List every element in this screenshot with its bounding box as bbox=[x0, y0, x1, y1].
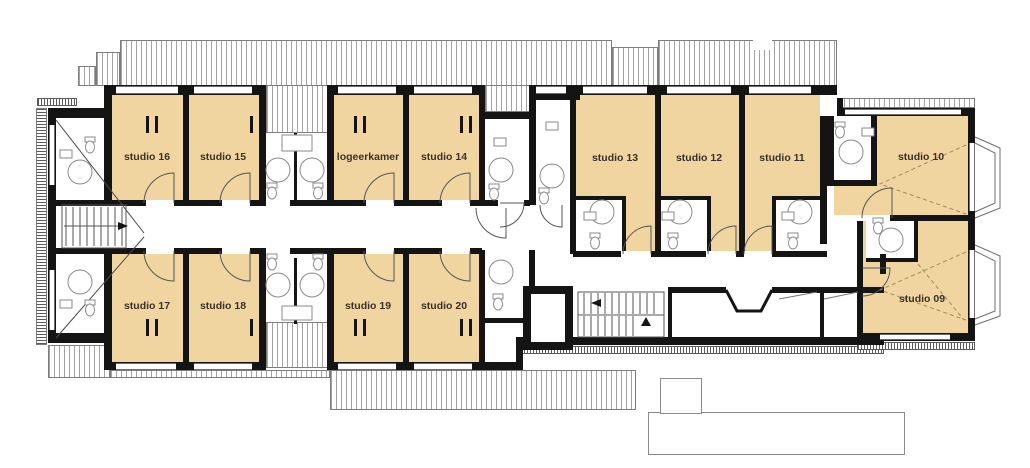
wall-segment bbox=[327, 254, 334, 370]
toilet-icon bbox=[85, 300, 95, 305]
room-label: studio 15 bbox=[200, 151, 246, 163]
bay-window bbox=[975, 251, 995, 319]
vent-icon bbox=[460, 116, 472, 133]
vent-icon bbox=[460, 319, 472, 336]
shower-icon bbox=[266, 158, 290, 182]
window bbox=[880, 334, 950, 340]
wall-segment bbox=[655, 93, 661, 254]
shower-icon bbox=[489, 260, 513, 284]
door-opening bbox=[726, 287, 772, 293]
roof-hatch-bottom bbox=[48, 345, 110, 378]
deck-tick-strip bbox=[520, 346, 884, 354]
sink-icon bbox=[282, 135, 312, 151]
lower-roof-outline bbox=[648, 412, 905, 455]
window bbox=[338, 86, 396, 94]
shower-icon bbox=[489, 158, 513, 182]
roof-hatch-step bbox=[96, 52, 120, 86]
toilet-icon bbox=[267, 254, 277, 259]
toilet-icon bbox=[268, 187, 277, 199]
room-studio-15 bbox=[189, 93, 259, 203]
wall-segment bbox=[772, 196, 820, 200]
deck-tick-strip-left bbox=[36, 108, 47, 345]
room-studio-16 bbox=[110, 93, 183, 203]
door-opening bbox=[222, 248, 250, 254]
shower-icon bbox=[300, 273, 324, 297]
room-label: studio 11 bbox=[759, 152, 805, 164]
door-opening bbox=[498, 200, 524, 206]
wall-segment bbox=[880, 254, 886, 274]
window bbox=[749, 86, 811, 94]
bay-window bbox=[975, 143, 995, 212]
wall-segment bbox=[403, 93, 409, 203]
slant-window-mark bbox=[824, 292, 858, 299]
roof-hatch-dip bbox=[266, 85, 328, 133]
roof-hatch-right bbox=[838, 98, 975, 108]
wall-segment bbox=[294, 258, 297, 324]
wall-segment bbox=[573, 337, 884, 345]
wall-segment bbox=[104, 85, 112, 206]
door-opening bbox=[266, 200, 290, 206]
door-opening bbox=[366, 200, 394, 206]
stair-arrow-icon bbox=[591, 299, 601, 307]
wall-segment bbox=[661, 196, 711, 200]
toilet-icon bbox=[313, 183, 323, 188]
room-label: studio 13 bbox=[592, 152, 638, 164]
wall-segment bbox=[668, 287, 884, 293]
bay-window bbox=[975, 245, 1000, 325]
wall-segment bbox=[772, 196, 776, 254]
room-label: studio 10 bbox=[898, 151, 944, 163]
wall-segment bbox=[259, 254, 266, 370]
sink-icon bbox=[282, 306, 312, 320]
sink-icon bbox=[60, 300, 72, 308]
roof-hatch-dip bbox=[266, 322, 328, 368]
toilet-icon bbox=[86, 141, 95, 153]
shower-icon bbox=[300, 158, 324, 182]
toilet-icon bbox=[313, 254, 323, 259]
door-opening bbox=[531, 294, 565, 342]
bathroom-cell bbox=[866, 221, 914, 261]
roof-hatch-bottom bbox=[110, 370, 330, 378]
room-logeerkamer bbox=[333, 93, 403, 203]
bay-window bbox=[975, 137, 1000, 218]
door-opening bbox=[366, 248, 394, 254]
floor-plan: studio 16 studio 15 logeerkamer studio 1… bbox=[0, 0, 1030, 468]
window bbox=[116, 363, 176, 370]
wall-segment bbox=[183, 93, 189, 203]
vent-icon bbox=[250, 319, 262, 336]
wall-segment bbox=[48, 108, 106, 118]
toilet-icon bbox=[493, 294, 503, 299]
room-label: logeerkamer bbox=[337, 151, 399, 163]
wall-segment bbox=[739, 93, 745, 254]
wall-segment bbox=[482, 112, 533, 119]
roof-hatch-top bbox=[658, 40, 837, 86]
window bbox=[536, 86, 566, 94]
wall-segment bbox=[707, 196, 711, 254]
room-studio-14 bbox=[409, 93, 479, 203]
wall-segment bbox=[827, 116, 834, 180]
door-opening bbox=[146, 200, 174, 206]
toilet-icon bbox=[85, 137, 95, 142]
wall-segment bbox=[622, 196, 626, 254]
wall-segment bbox=[183, 254, 189, 362]
wall-segment bbox=[516, 337, 523, 370]
window bbox=[194, 363, 252, 370]
door-opening bbox=[862, 215, 890, 221]
vent-icon bbox=[146, 319, 158, 336]
shower-icon bbox=[266, 273, 290, 297]
wall-segment bbox=[820, 290, 824, 337]
wall-segment bbox=[529, 85, 536, 205]
door-opening bbox=[706, 251, 736, 257]
room-label: studio 19 bbox=[345, 300, 391, 312]
window bbox=[969, 250, 975, 318]
door-opening bbox=[442, 248, 470, 254]
window bbox=[49, 125, 55, 185]
vent-icon bbox=[354, 116, 366, 133]
door-swing-arc bbox=[476, 208, 506, 238]
door-opening bbox=[442, 200, 470, 206]
door-opening bbox=[146, 248, 174, 254]
window bbox=[49, 270, 55, 330]
deck-tick-strip bbox=[37, 98, 77, 106]
sink-icon bbox=[546, 122, 558, 130]
wall-segment bbox=[327, 85, 334, 206]
wall-segment bbox=[820, 116, 827, 244]
wall-segment bbox=[259, 85, 266, 206]
roof-step-notch bbox=[753, 40, 772, 50]
toilet-icon bbox=[494, 298, 503, 310]
stair-arrow-icon bbox=[641, 317, 651, 326]
wall-segment bbox=[866, 258, 918, 262]
staircase bbox=[62, 205, 126, 248]
wall-segment bbox=[827, 180, 877, 186]
lower-roof-outline bbox=[660, 378, 702, 414]
wall-segment bbox=[294, 133, 297, 203]
slant-window-mark bbox=[779, 292, 817, 299]
roof-hatch-dip bbox=[485, 85, 530, 112]
door-opening bbox=[540, 200, 562, 206]
staircase bbox=[578, 292, 664, 337]
bathroom-cell bbox=[834, 116, 874, 180]
room-label: studio 12 bbox=[676, 152, 722, 164]
door-swing-arc bbox=[500, 203, 524, 227]
toilet-icon bbox=[268, 258, 277, 270]
vent-icon bbox=[354, 319, 366, 336]
sink-icon bbox=[494, 138, 506, 146]
window bbox=[194, 86, 252, 94]
vent-icon bbox=[250, 116, 262, 133]
wall-segment bbox=[576, 196, 626, 200]
room-label: studio 17 bbox=[124, 300, 170, 312]
wall-segment bbox=[914, 221, 918, 262]
window bbox=[116, 86, 178, 94]
roof-hatch-top bbox=[120, 40, 612, 86]
bathroom-cell bbox=[576, 197, 622, 254]
window bbox=[583, 86, 647, 94]
wall-segment bbox=[104, 254, 112, 370]
door-opening bbox=[266, 248, 290, 254]
shower-icon bbox=[68, 160, 92, 184]
room-label: studio 18 bbox=[200, 300, 246, 312]
door-swing-arc bbox=[540, 205, 562, 227]
room-label: studio 09 bbox=[899, 293, 945, 305]
toilet-icon bbox=[267, 183, 277, 188]
bathroom-cell bbox=[776, 197, 820, 254]
shower-icon bbox=[68, 270, 92, 294]
wall-segment bbox=[403, 254, 409, 362]
wall-segment bbox=[479, 250, 485, 364]
wall-segment bbox=[871, 116, 877, 180]
window bbox=[338, 363, 396, 370]
door-opening bbox=[621, 251, 651, 257]
sink-icon bbox=[60, 150, 72, 158]
wall-segment bbox=[479, 85, 485, 206]
stair-arrow-icon bbox=[118, 222, 128, 230]
room-label: studio 16 bbox=[124, 151, 170, 163]
door-opening bbox=[222, 200, 250, 206]
toilet-icon bbox=[490, 188, 499, 200]
shower-icon bbox=[540, 164, 564, 188]
wall-segment bbox=[48, 333, 106, 343]
toilet-icon bbox=[489, 184, 499, 189]
bathroom-cell bbox=[661, 197, 707, 254]
toilet-icon bbox=[314, 258, 323, 270]
window bbox=[414, 363, 472, 370]
window bbox=[969, 143, 975, 211]
room-label: studio 14 bbox=[421, 151, 467, 163]
roof-hatch-step bbox=[78, 66, 96, 86]
vent-icon bbox=[146, 116, 158, 133]
toilet-icon bbox=[314, 187, 323, 199]
room-label: studio 20 bbox=[421, 300, 467, 312]
window bbox=[414, 86, 472, 94]
wall-segment bbox=[857, 221, 863, 333]
roof-hatch-top bbox=[612, 47, 658, 86]
toilet-icon bbox=[539, 188, 549, 193]
window bbox=[667, 86, 731, 94]
wall-segment bbox=[570, 95, 576, 254]
wall-segment bbox=[573, 251, 827, 257]
window bbox=[845, 109, 961, 115]
door-opening bbox=[744, 251, 772, 257]
dormer-notch bbox=[726, 290, 772, 311]
toilet-icon bbox=[86, 304, 95, 316]
roof-hatch-bottom bbox=[330, 370, 636, 410]
wall-segment bbox=[668, 290, 672, 337]
